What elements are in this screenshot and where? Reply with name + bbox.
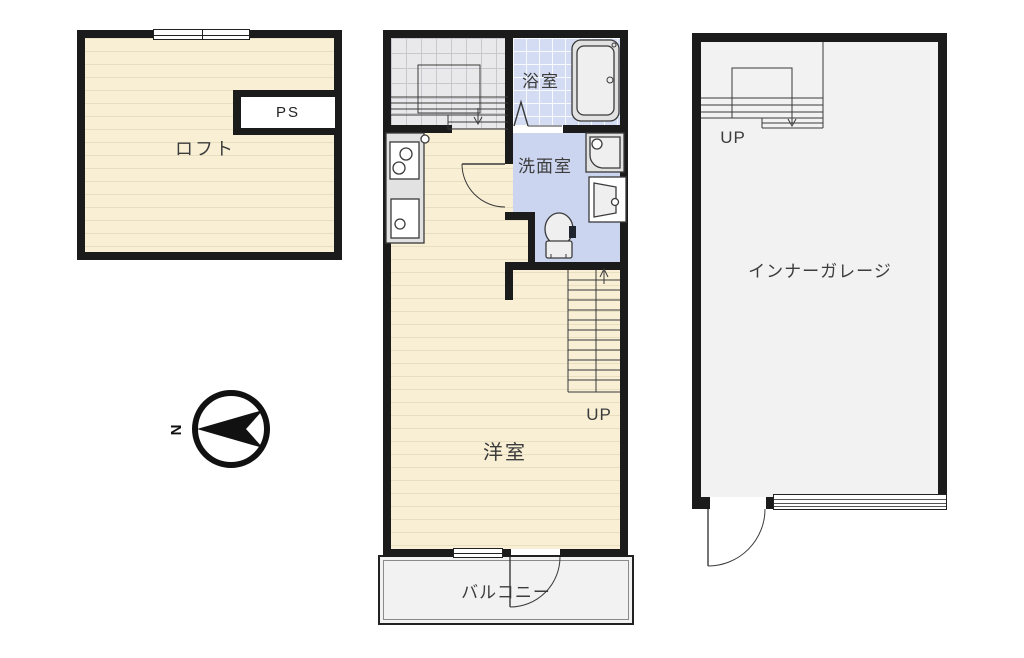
balcony-door-arc [510,557,560,607]
floor-plan-figure: PS ロフト 浴室 洗面室 洋室 UP [0,0,1024,658]
bath-bifold-door [514,102,562,126]
washroom-sink [586,133,624,172]
room-door-arc [462,164,505,207]
compass [195,393,267,465]
bathtub [572,40,619,121]
kitchen-sink-icon [391,199,419,238]
linework-overlay [0,0,1024,658]
stairs-landing-lines [391,65,508,129]
garage-stairs-lines [701,42,823,128]
stairs-up-main [568,269,620,392]
garage-door-arc [708,509,765,566]
kitchen-counter [386,133,429,243]
washing-machine [589,177,626,222]
toilet [545,213,576,258]
